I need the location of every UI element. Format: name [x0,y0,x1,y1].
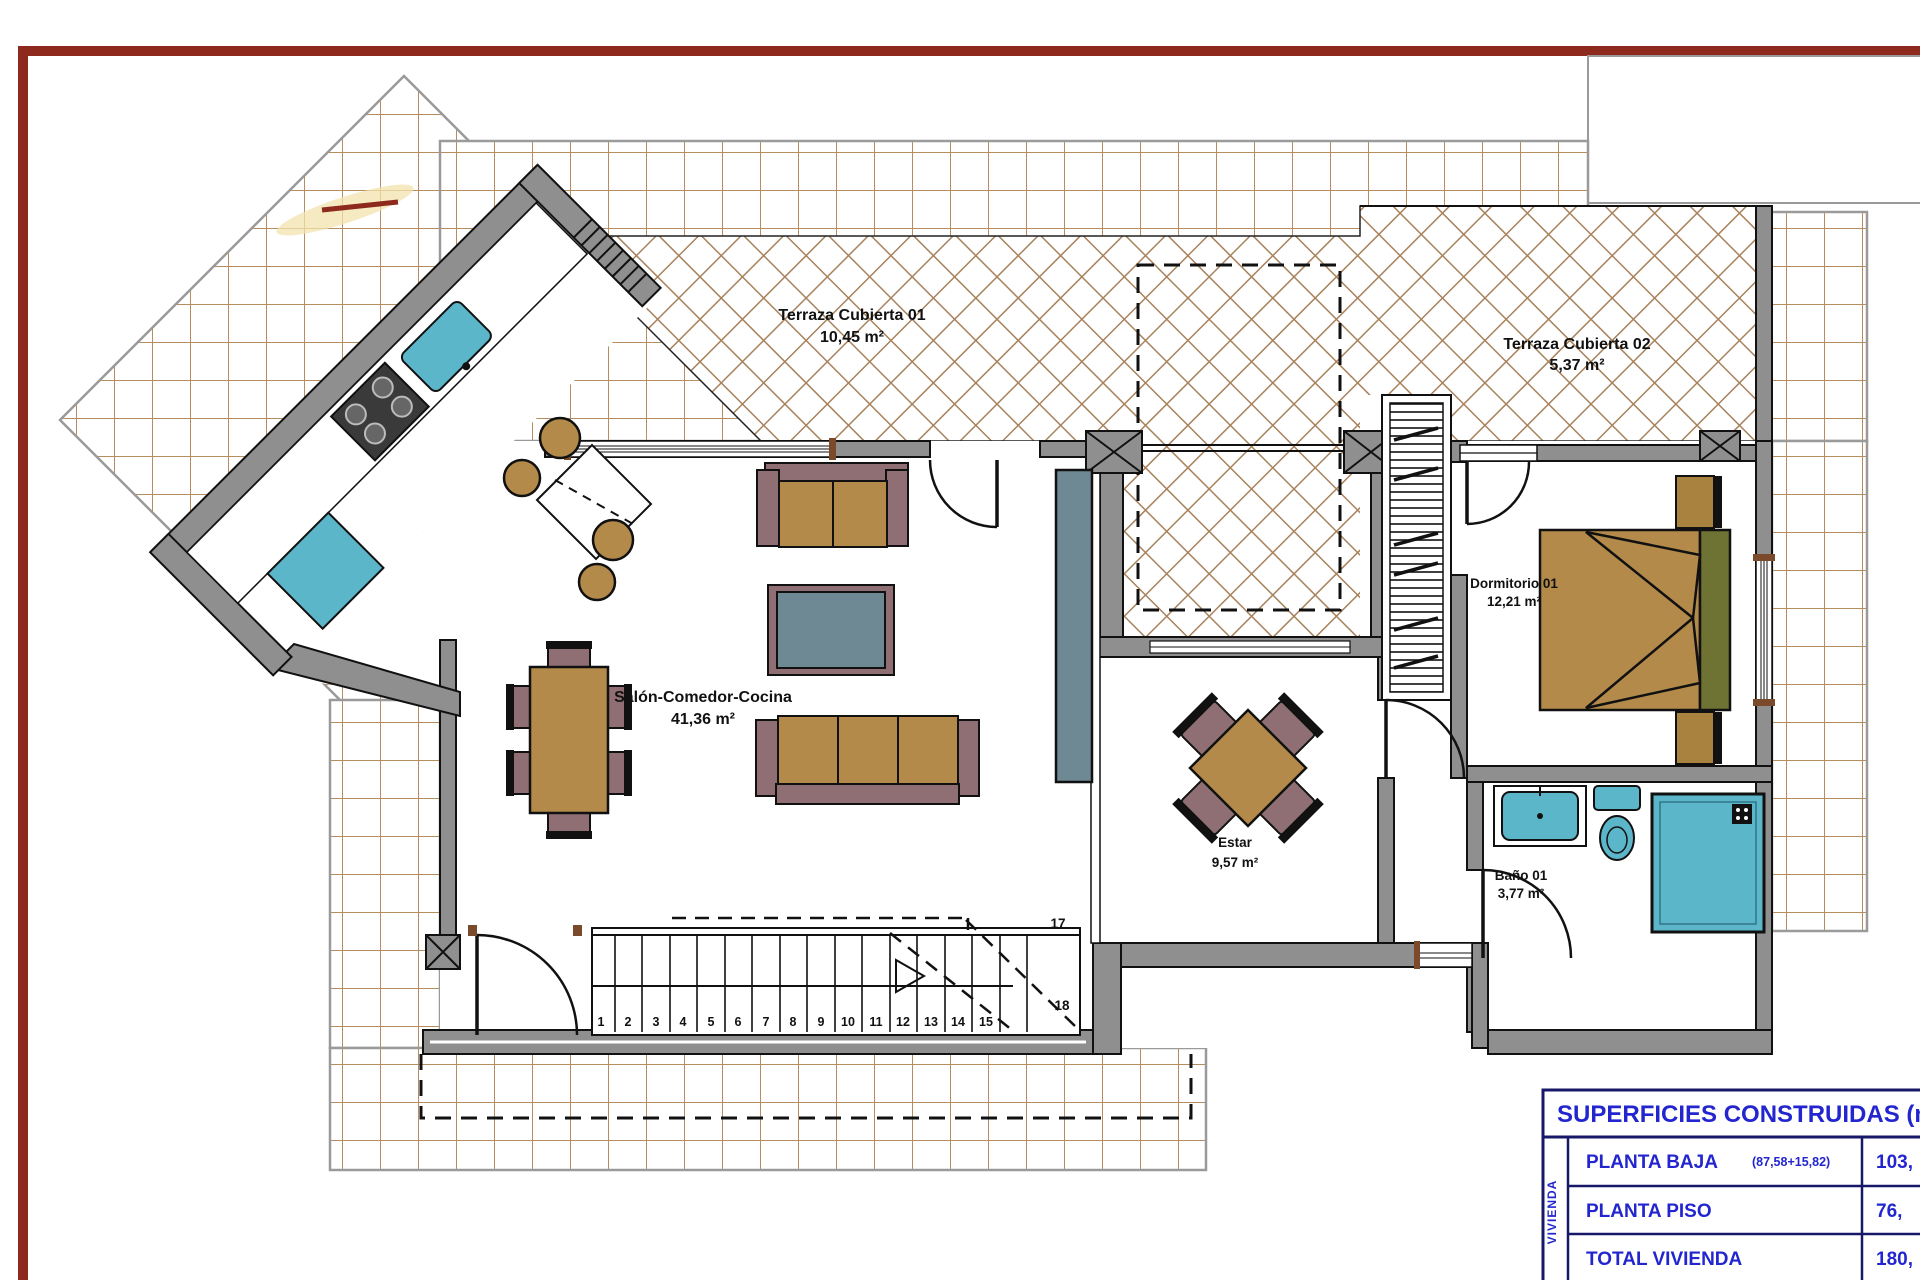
closet [1382,395,1451,700]
floor-plan-page: 17 18 1 2 3 4 5 6 7 8 9 10 11 12 13 14 1… [0,0,1920,1280]
svg-text:11: 11 [869,1015,882,1029]
wall-stairs-jog [1093,943,1121,1054]
dining-chair [512,686,530,728]
label-salon-area: 41,36 m² [671,711,735,728]
stairs: 17 18 1 2 3 4 5 6 7 8 9 10 11 12 13 14 1… [592,916,1080,1035]
shower [1652,794,1764,932]
wall-top-stub [1040,441,1092,457]
label-estar-area: 9,57 m² [1212,855,1259,870]
dining-table [530,667,608,813]
terrace-left-column [330,700,440,1048]
window-estar-top [1150,641,1350,653]
svg-text:1: 1 [598,1015,605,1029]
frame-top-bar [18,46,1920,56]
stair-mark-18: 18 [1054,998,1070,1013]
label-terraza02-area: 5,37 m² [1549,357,1604,374]
nightstand [1676,712,1714,764]
table-title: SUPERFICIES CONSTRUIDAS (m [1557,1101,1920,1128]
svg-text:10: 10 [841,1015,855,1029]
svg-text:103,: 103, [1876,1152,1913,1173]
window-bedroom-right [1753,554,1775,706]
svg-text:PLANTA PISO: PLANTA PISO [1586,1201,1712,1222]
wall-left [440,640,456,935]
table-side-label: VIVIENDA [1545,1180,1559,1245]
svg-text:TOTAL VIVIENDA: TOTAL VIVIENDA [1586,1249,1743,1270]
svg-text:PLANTA BAJA: PLANTA BAJA [1586,1152,1718,1173]
svg-text:14: 14 [951,1015,965,1029]
window-bedroom-top [1460,445,1537,461]
title-block-placeholder [1588,56,1920,203]
svg-text:13: 13 [924,1015,938,1029]
svg-text:6: 6 [735,1015,742,1029]
svg-text:8: 8 [790,1015,797,1029]
svg-text:76,: 76, [1876,1201,1902,1222]
svg-text:4: 4 [680,1015,687,1029]
bath-sink-drain [1537,813,1543,819]
wall-terraza02-right [1756,206,1772,441]
label-bano-name: Baño 01 [1495,868,1548,883]
window-estar-bottom [1414,941,1472,969]
svg-text:2: 2 [625,1015,632,1029]
svg-text:3: 3 [653,1015,660,1029]
coffee-table [768,585,894,675]
sofa-three-seat [756,716,979,804]
wall-bedroom-right [1756,441,1772,1048]
label-estar-name: Estar [1218,835,1253,850]
wall-hall-door-stub-bottom [1378,778,1394,943]
estar-set [1172,692,1324,844]
svg-text:180,: 180, [1876,1249,1913,1270]
terrace-bottom-strip [330,1048,1206,1170]
nightstand [1676,476,1714,528]
label-terraza01-name: Terraza Cubierta 01 [778,307,925,324]
svg-text:7: 7 [763,1015,770,1029]
wall-bath-bottom [1488,1030,1772,1054]
floor-plan-svg: 17 18 1 2 3 4 5 6 7 8 9 10 11 12 13 14 1… [0,0,1920,1280]
sofa-two-seat [757,463,908,547]
tv-cabinet [1056,470,1092,782]
wall-bed-bath [1467,766,1772,782]
wall-estar-right [1472,943,1488,1048]
label-terraza01-area: 10,45 m² [820,329,884,346]
summary-table: SUPERFICIES CONSTRUIDAS (m VIVIENDA PLAN… [1543,1090,1920,1280]
label-terraza02-name: Terraza Cubierta 02 [1503,336,1650,353]
dining-chair [512,752,530,794]
label-bano-area: 3,77 m² [1498,886,1545,901]
frame-left-bar [18,46,28,1280]
bed-pillow-strip [1700,530,1730,710]
svg-text:12: 12 [896,1015,910,1029]
terrace-right-column [1772,441,1867,931]
label-dormitorio-area: 12,21 m² [1487,594,1542,609]
svg-text:(87,58+15,82): (87,58+15,82) [1752,1155,1830,1169]
wall-bath-left-upper [1467,782,1483,870]
dining-chair [608,752,626,794]
stair-step-numbers: 1 2 3 4 5 6 7 8 9 10 11 12 13 14 15 [598,1015,993,1029]
stair-mark-17: 17 [1050,916,1065,931]
label-salon-name: Salón-Comedor-Cocina [614,689,792,706]
svg-text:5: 5 [708,1015,715,1029]
svg-text:15: 15 [979,1015,993,1029]
label-dormitorio-name: Dormitorio 01 [1470,576,1558,591]
svg-text:9: 9 [818,1015,825,1029]
